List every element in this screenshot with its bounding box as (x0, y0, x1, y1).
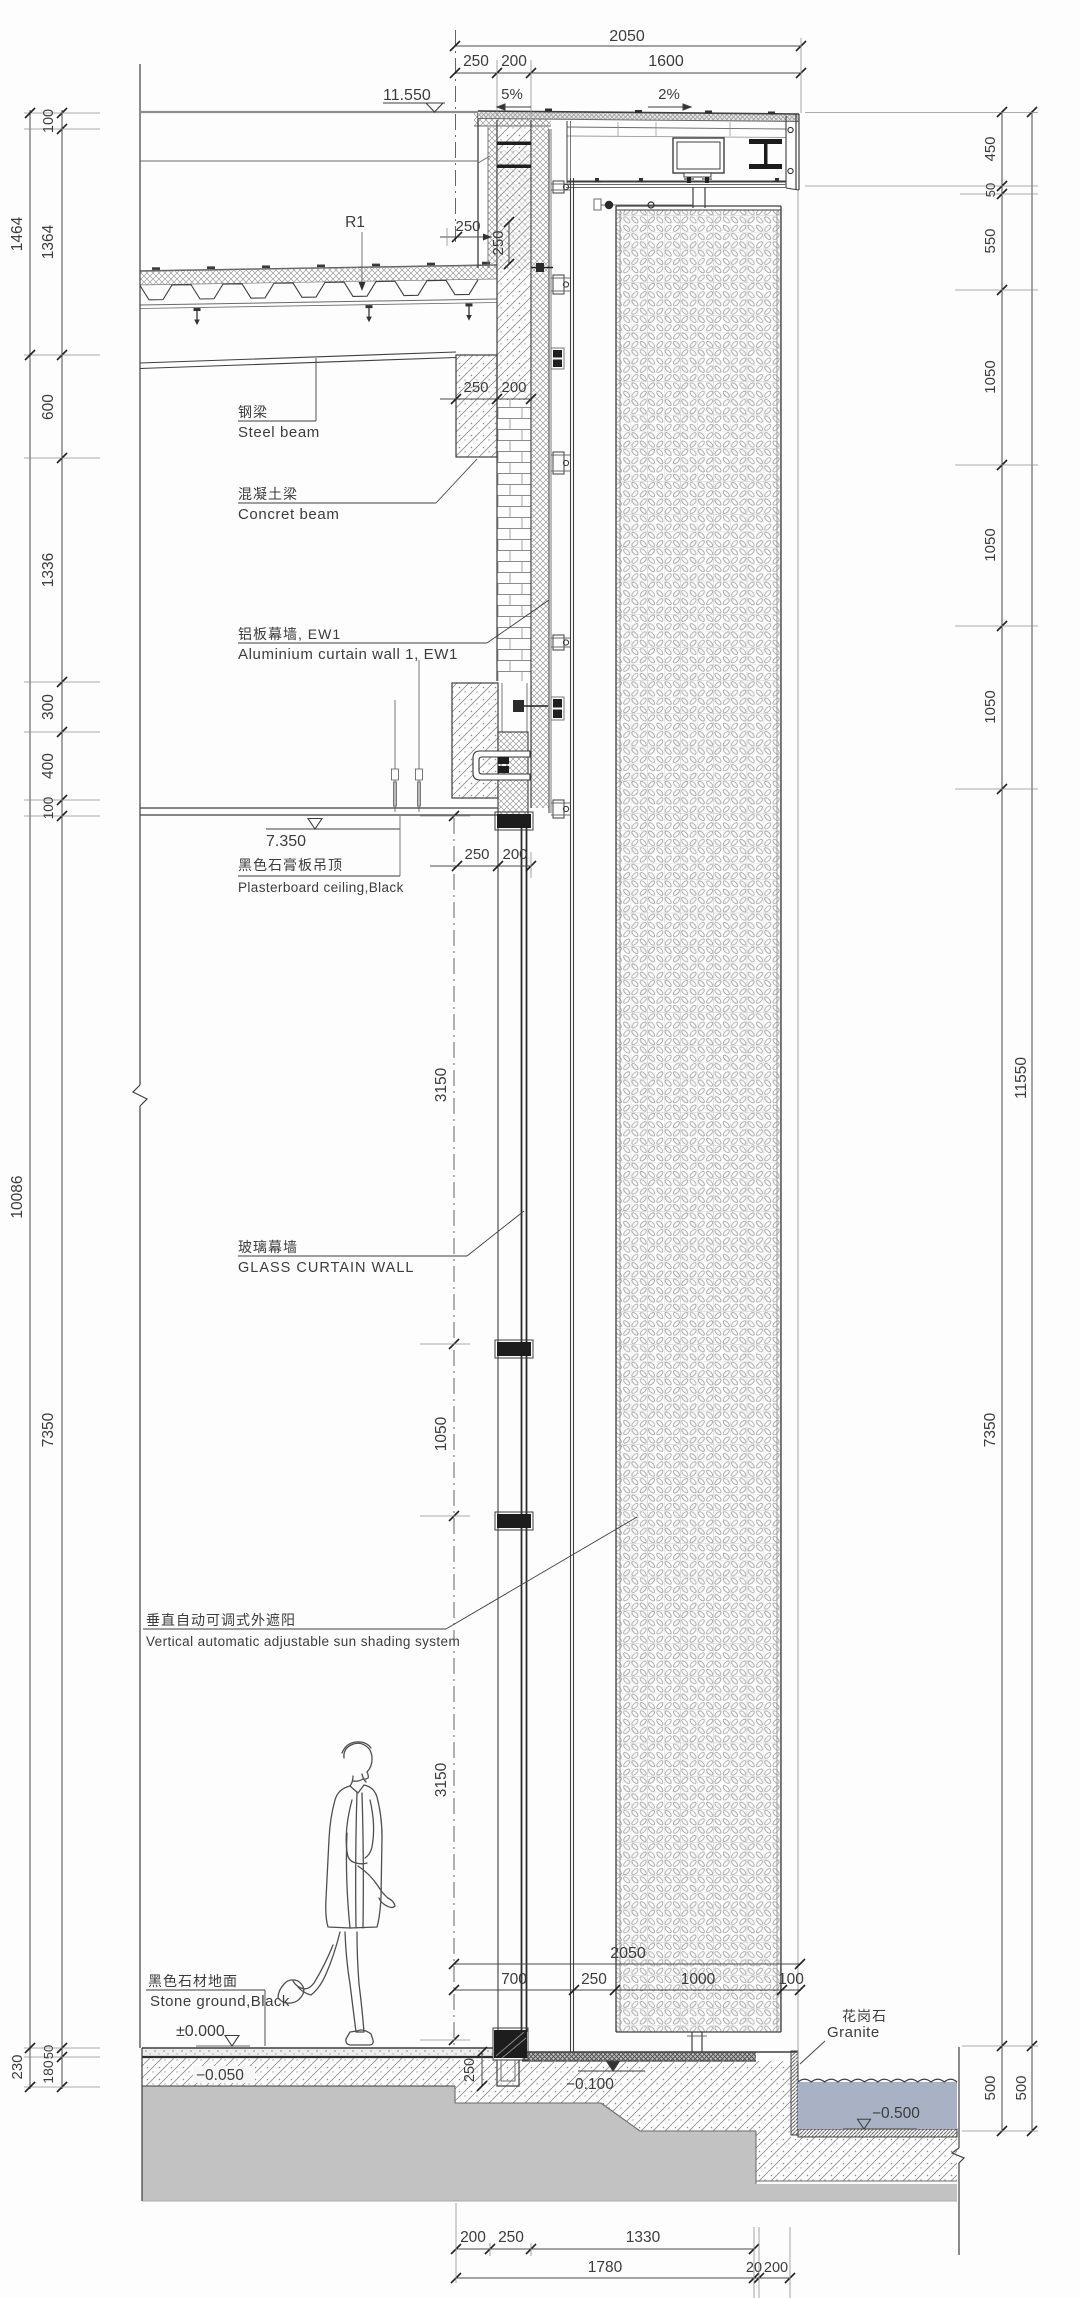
svg-text:50: 50 (983, 183, 998, 197)
svg-text:300: 300 (40, 694, 57, 720)
svg-text:Steel beam: Steel beam (238, 424, 320, 441)
svg-text:50: 50 (41, 2045, 56, 2059)
svg-text:黑色石材地面: 黑色石材地面 (148, 1973, 238, 1989)
svg-text:Aluminium curtain wall 1, EW1: Aluminium curtain wall 1, EW1 (238, 646, 458, 663)
svg-text:5%: 5% (501, 86, 523, 103)
svg-text:花岗石: 花岗石 (842, 2008, 887, 2024)
svg-text:1000: 1000 (681, 1971, 716, 1988)
svg-text:200: 200 (501, 379, 526, 396)
svg-text:11550: 11550 (1013, 1057, 1030, 1099)
svg-text:±0.000: ±0.000 (176, 2023, 225, 2040)
svg-text:400: 400 (40, 753, 57, 779)
svg-text:700: 700 (501, 1971, 527, 1988)
svg-text:250: 250 (581, 1971, 607, 1988)
svg-text:1050: 1050 (982, 690, 999, 723)
svg-text:Vertical automatic adjustable: Vertical automatic adjustable sun shadin… (146, 1634, 460, 1649)
svg-text:550: 550 (982, 228, 999, 253)
svg-text:垂直自动可调式外遮阳: 垂直自动可调式外遮阳 (146, 1612, 296, 1628)
svg-text:600: 600 (40, 394, 57, 420)
svg-text:1364: 1364 (40, 224, 57, 259)
svg-text:1464: 1464 (9, 216, 26, 251)
svg-text:−0.500: −0.500 (872, 2105, 920, 2122)
svg-text:7350: 7350 (982, 1412, 999, 1447)
svg-text:450: 450 (982, 136, 999, 161)
svg-text:500: 500 (982, 2075, 999, 2100)
svg-text:200: 200 (502, 846, 527, 863)
svg-text:500: 500 (1013, 2075, 1030, 2100)
svg-text:Concret beam: Concret beam (238, 506, 339, 523)
svg-text:铝板幕墙, EW1: 铝板幕墙, EW1 (238, 626, 341, 642)
svg-text:R1: R1 (345, 214, 365, 231)
svg-text:3150: 3150 (433, 1067, 450, 1102)
svg-text:GLASS CURTAIN WALL: GLASS CURTAIN WALL (238, 1260, 414, 1276)
svg-text:黑色石膏板吊顶: 黑色石膏板吊顶 (238, 857, 343, 873)
svg-text:250: 250 (498, 2229, 524, 2246)
svg-text:钢梁: 钢梁 (238, 404, 268, 420)
svg-text:1780: 1780 (588, 2259, 623, 2276)
svg-text:250: 250 (490, 230, 507, 255)
svg-text:11.550: 11.550 (383, 87, 431, 104)
svg-text:玻璃幕墙: 玻璃幕墙 (238, 1239, 298, 1255)
svg-text:3150: 3150 (433, 1762, 450, 1797)
svg-text:1600: 1600 (648, 53, 684, 70)
svg-text:2050: 2050 (610, 1945, 646, 1962)
svg-text:1330: 1330 (626, 2229, 661, 2246)
svg-text:200: 200 (501, 53, 527, 70)
svg-text:180: 180 (40, 2060, 56, 2084)
svg-text:230: 230 (9, 2054, 26, 2079)
svg-text:2%: 2% (658, 86, 680, 103)
svg-text:250: 250 (464, 846, 489, 863)
svg-text:Stone ground,Black: Stone ground,Black (150, 1993, 290, 2010)
svg-text:10086: 10086 (9, 1175, 26, 1218)
svg-text:1050: 1050 (982, 528, 999, 561)
svg-text:1336: 1336 (40, 553, 57, 587)
svg-text:250: 250 (463, 379, 488, 396)
svg-text:7350: 7350 (40, 1412, 57, 1447)
svg-text:混凝土梁: 混凝土梁 (238, 486, 298, 502)
svg-text:250: 250 (455, 218, 480, 235)
svg-text:−0.100: −0.100 (566, 2076, 614, 2093)
svg-text:Granite: Granite (827, 2024, 880, 2041)
svg-text:100: 100 (41, 109, 57, 133)
svg-text:7.350: 7.350 (266, 833, 306, 850)
svg-text:200: 200 (460, 2229, 486, 2246)
svg-text:100: 100 (778, 1971, 804, 1988)
svg-text:1050: 1050 (433, 1416, 450, 1451)
svg-text:−0.050: −0.050 (196, 2067, 244, 2084)
svg-text:100: 100 (41, 797, 56, 820)
svg-text:1050: 1050 (982, 360, 999, 393)
svg-text:250: 250 (463, 53, 489, 70)
svg-text:2050: 2050 (609, 28, 645, 45)
svg-text:250: 250 (462, 2058, 478, 2082)
svg-text:Plasterboard ceiling,Black: Plasterboard ceiling,Black (238, 880, 404, 895)
svg-text:200: 200 (764, 2260, 788, 2276)
